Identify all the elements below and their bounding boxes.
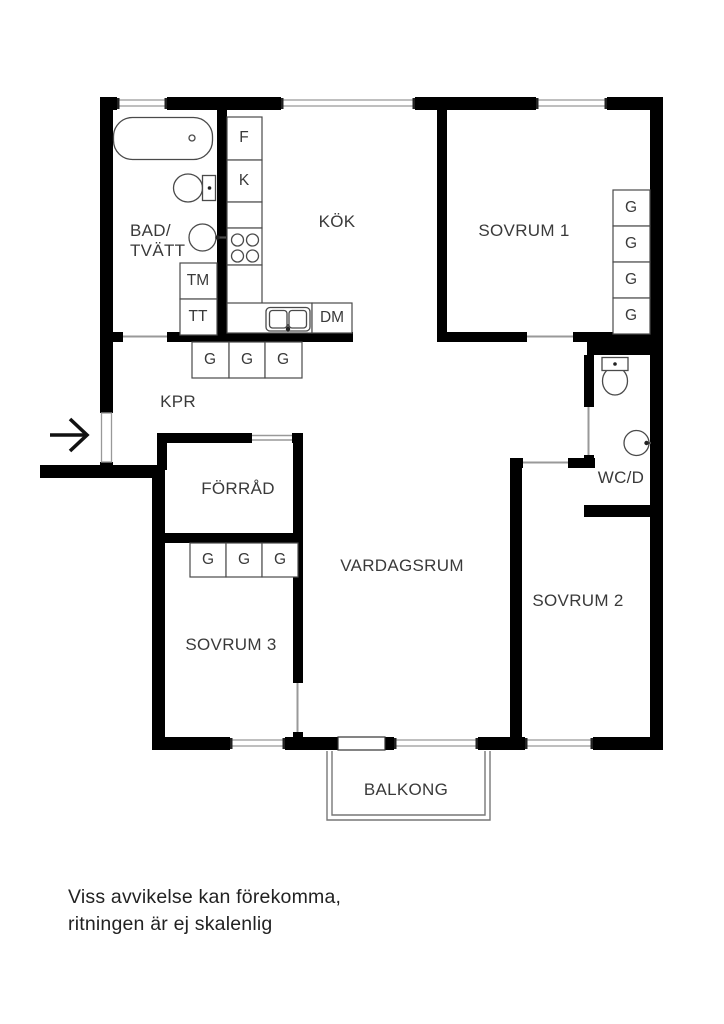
door-balkong (338, 737, 385, 750)
closet-label: G (625, 306, 637, 326)
room-label-sovrum1: SOVRUM 1 (478, 221, 569, 241)
closet-label: G (241, 350, 253, 370)
room-label-sovrum3: SOVRUM 3 (185, 635, 276, 655)
room-label-kok: KÖK (319, 212, 356, 232)
floor-plan: BAD/TVÄTT KÖK SOVRUM 1 KPR FÖRRÅD VARDAG… (0, 0, 724, 1024)
appliance-label-k: K (239, 171, 249, 191)
door-sovrum2 (523, 458, 568, 468)
room-label-vardagsrum: VARDAGSRUM (340, 556, 464, 576)
bathtub-icon (114, 118, 213, 160)
door-wcd (584, 407, 594, 455)
toilet-bad-icon (174, 174, 216, 202)
door-entry (100, 413, 113, 462)
door-forrad (252, 433, 292, 443)
appliance-label-f: F (239, 128, 248, 148)
disclaimer-text: Viss avvikelse kan förekomma, ritningen … (68, 884, 341, 938)
room-label-bad-tvatt: BAD/TVÄTT (130, 221, 185, 261)
floor-plan-drawing (0, 0, 724, 1024)
kitchen-sink-icon (266, 308, 310, 333)
disclaimer-line1: Viss avvikelse kan förekomma, (68, 884, 341, 911)
room-label-forrad: FÖRRÅD (201, 479, 275, 499)
appliance-label-tm: TM (187, 271, 209, 291)
room-label-wcd: WC/D (598, 468, 645, 488)
closet-label: G (274, 550, 286, 570)
toilet-wcd-icon (602, 358, 628, 396)
window-sovrum2 (525, 737, 593, 750)
closet-label: G (204, 350, 216, 370)
window-sovrum1 (536, 97, 607, 110)
window-sovrum3 (230, 737, 285, 750)
room-label-balkong: BALKONG (364, 780, 448, 800)
door-bad-tvatt (123, 332, 167, 342)
entry-arrow-icon (50, 419, 87, 451)
closet-label: G (625, 270, 637, 290)
closet-label: G (625, 198, 637, 218)
door-sovrum3 (293, 683, 303, 732)
window-bad-tvatt (117, 97, 167, 110)
appliance-label-dm: DM (320, 308, 344, 328)
walls (40, 97, 663, 750)
closet-label: G (625, 234, 637, 254)
room-label-sovrum2: SOVRUM 2 (532, 591, 623, 611)
closet-label: G (202, 550, 214, 570)
window-vardagsrum (394, 737, 478, 750)
door-sovrum1 (527, 332, 573, 342)
room-label-kpr: KPR (160, 392, 196, 412)
basin-wcd-icon (624, 431, 651, 456)
appliance-label-tt: TT (189, 307, 208, 327)
disclaimer-line2: ritningen är ej skalenlig (68, 911, 341, 938)
closet-label: G (277, 350, 289, 370)
window-kok (281, 97, 415, 110)
closet-label: G (238, 550, 250, 570)
